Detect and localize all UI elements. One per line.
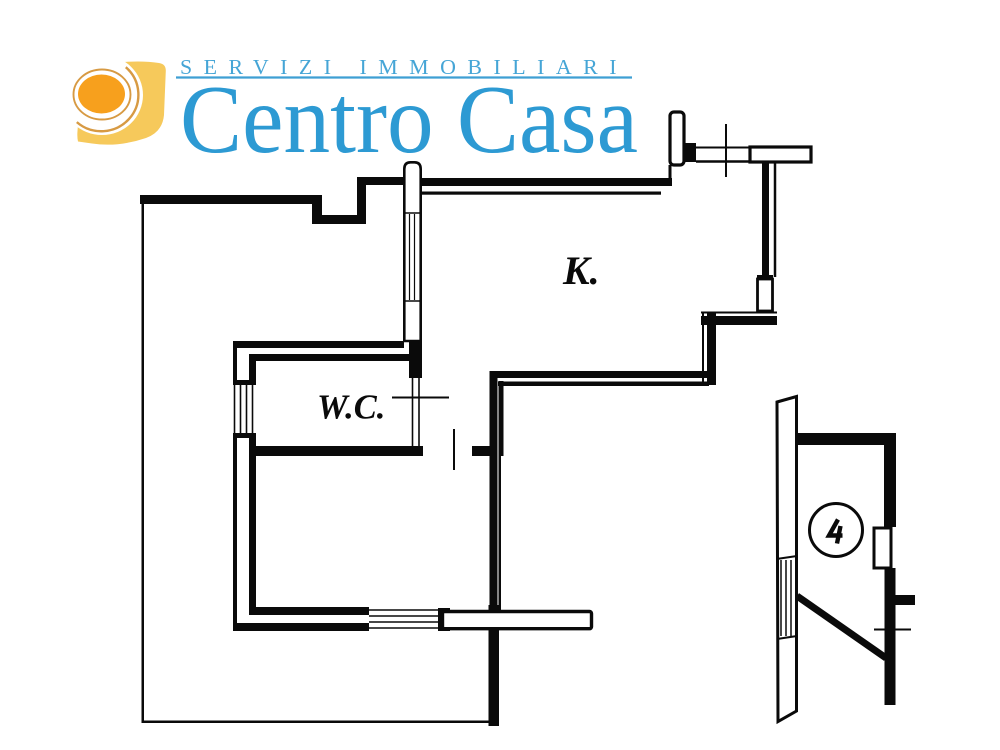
svg-text:K.: K. bbox=[562, 248, 600, 293]
svg-text:W.C.: W.C. bbox=[317, 389, 385, 427]
svg-text:Centro Casa: Centro Casa bbox=[180, 66, 638, 173]
